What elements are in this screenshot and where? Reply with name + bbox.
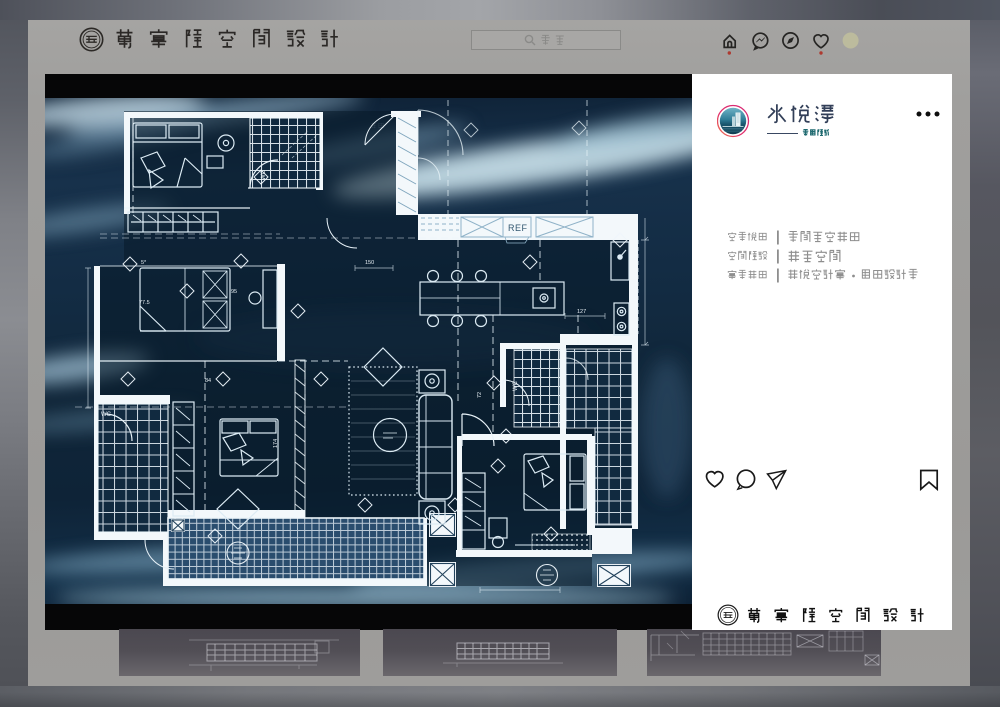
svg-text:127: 127: [577, 309, 586, 315]
svg-text:95: 95: [231, 289, 237, 295]
svg-text:WC: WC: [261, 169, 267, 180]
svg-text:5*: 5*: [141, 260, 147, 266]
svg-text:150: 150: [365, 260, 374, 266]
svg-text:WC: WC: [513, 380, 519, 391]
svg-text:REF: REF: [508, 223, 528, 233]
svg-text:77.5: 77.5: [139, 300, 150, 306]
svg-text:174: 174: [273, 439, 279, 448]
svg-text:72: 72: [477, 392, 483, 398]
svg-text:84: 84: [205, 378, 211, 384]
svg-text:WC: WC: [101, 412, 112, 418]
